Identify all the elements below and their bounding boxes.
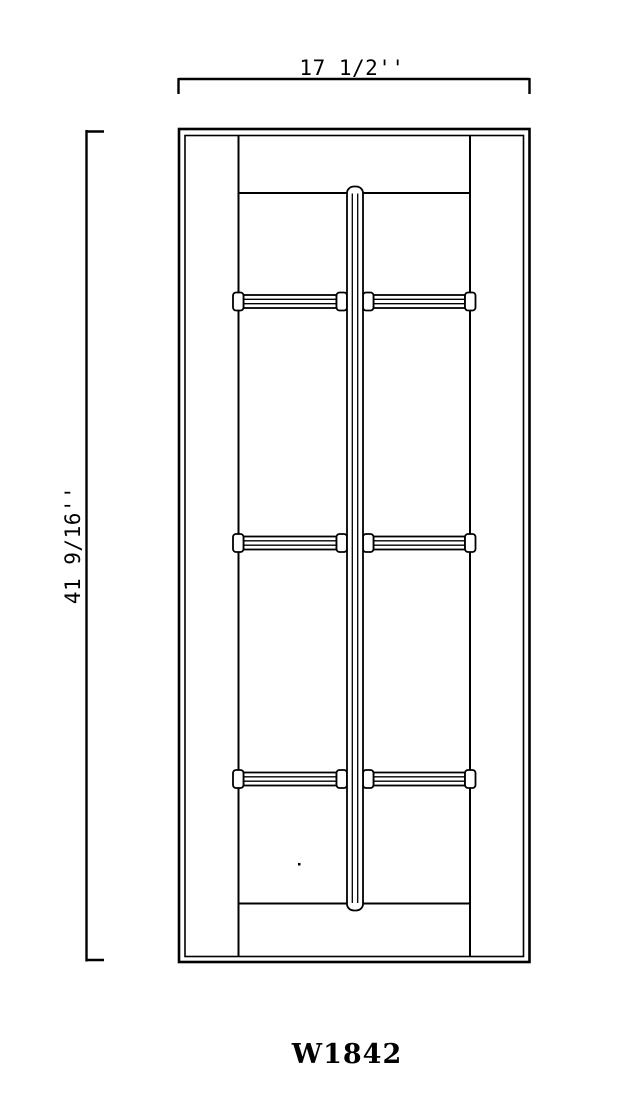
mullion-bar-cap xyxy=(363,293,374,311)
mullion-bar-body xyxy=(374,773,466,786)
mullion-glass-door xyxy=(179,129,530,962)
mullion-bar-cap xyxy=(363,534,374,552)
width-dimension xyxy=(179,78,530,94)
mullion-bar-cap xyxy=(337,293,348,311)
cabinet-door-spec-sheet: 17 1/2'' 41 9/16'' xyxy=(0,0,627,1115)
mullion-bar-body xyxy=(374,537,466,550)
mullion-bar-cap xyxy=(465,534,476,552)
height-dimension xyxy=(86,130,105,962)
mullion-bar-body xyxy=(244,773,337,786)
product-code-label: W1842 xyxy=(291,1039,402,1070)
height-dimension-label: 41 9/16'' xyxy=(61,486,85,604)
mullion-bar-cap xyxy=(465,293,476,311)
vertical-mullion xyxy=(347,187,363,911)
width-dimension-label: 17 1/2'' xyxy=(299,56,404,80)
mullion-bar-cap xyxy=(465,770,476,788)
mullion-bar-cap xyxy=(337,534,348,552)
vertical-mullion-outline xyxy=(347,187,363,911)
mullion-bar-body xyxy=(244,295,337,308)
mullion-bar-cap xyxy=(233,293,244,311)
mullion-bar-body xyxy=(374,295,466,308)
mullion-bar-cap xyxy=(363,770,374,788)
technical-drawing: 17 1/2'' 41 9/16'' xyxy=(0,0,627,1115)
mullion-bar-cap xyxy=(233,770,244,788)
mullion-bar-body xyxy=(244,537,337,550)
mullion-bar-cap xyxy=(337,770,348,788)
stray-mark xyxy=(298,863,301,866)
mullion-bar-cap xyxy=(233,534,244,552)
